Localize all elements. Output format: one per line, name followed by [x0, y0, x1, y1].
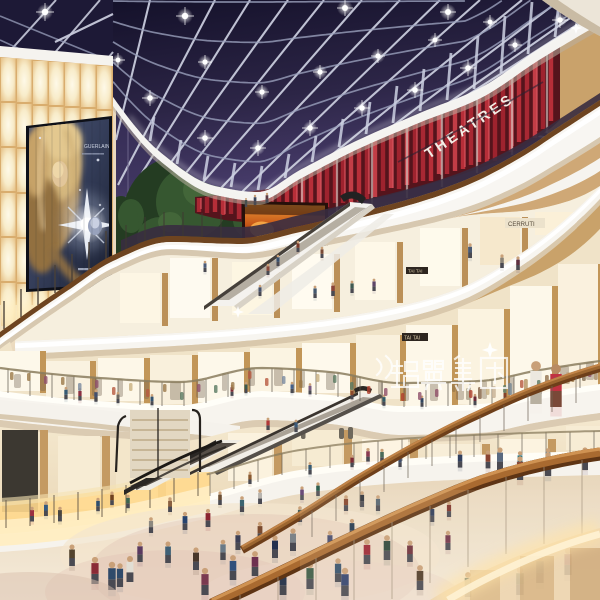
svg-text:GUERLAIN: GUERLAIN [84, 144, 110, 150]
svg-text:TAI TAI: TAI TAI [408, 269, 423, 274]
svg-text:TAI TAI: TAI TAI [404, 336, 420, 342]
svg-text:CERRUTI: CERRUTI [508, 222, 535, 228]
